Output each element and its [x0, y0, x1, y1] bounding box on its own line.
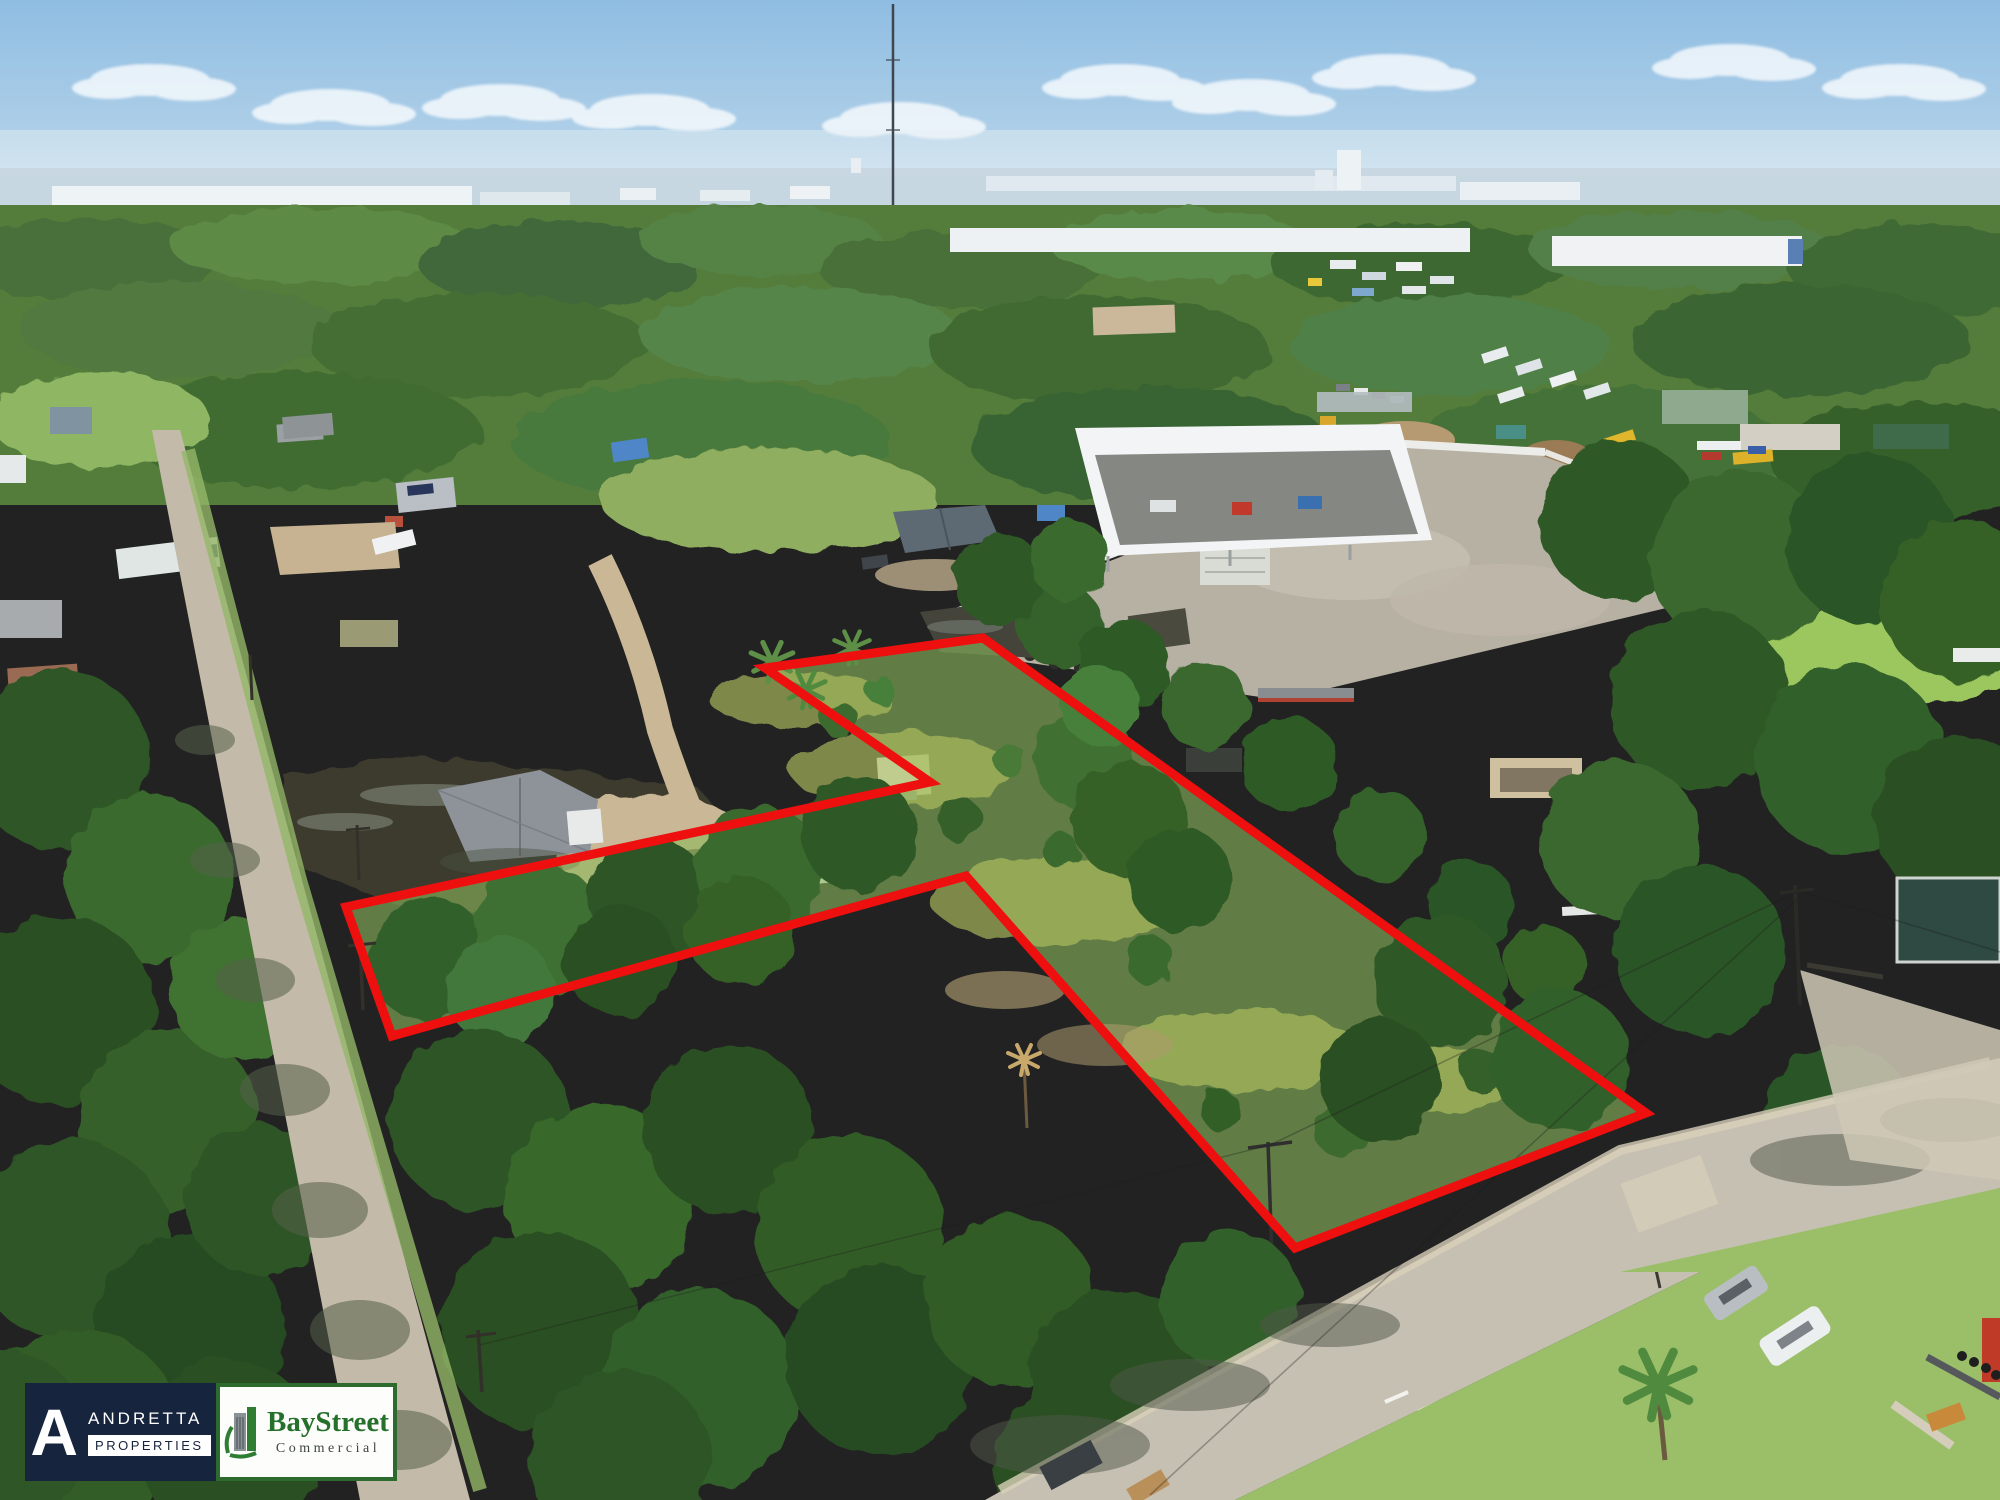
green-building: [1662, 390, 1748, 424]
olive-house: [340, 620, 398, 647]
red-car: [1701, 452, 1721, 460]
andretta-monogram: A: [30, 1399, 78, 1465]
gray-house-solar: [396, 477, 457, 513]
distant-highrise: [1337, 150, 1361, 190]
andretta-properties-logo: A ANDRETTA PROPERTIES: [25, 1383, 216, 1481]
andretta-name: ANDRETTA: [88, 1409, 202, 1429]
teal-machine: [1496, 425, 1526, 439]
shed: [50, 407, 92, 434]
tan-building: [1093, 305, 1176, 336]
lawn-patch: [600, 448, 940, 552]
andretta-division: PROPERTIES: [88, 1435, 211, 1456]
dark-truck: [1186, 748, 1242, 772]
blue-tarp-2: [1037, 505, 1065, 521]
baystreet-building-icon: [224, 1405, 260, 1459]
aerial-scene: [0, 0, 2000, 1500]
fenced-enclosure: [1897, 878, 2000, 962]
baystreet-name: BayStreet: [267, 1408, 389, 1437]
yellow-unit: [1308, 278, 1322, 286]
dead-palm: [1008, 1045, 1040, 1128]
excavator: [1320, 416, 1336, 425]
baystreet-commercial-logo: BayStreet Commercial: [216, 1383, 397, 1481]
dark-green-warehouse: [1873, 424, 1949, 449]
crate-stacks: [1200, 545, 1270, 585]
blue-truck: [1748, 446, 1766, 454]
red-forklift: [1232, 502, 1252, 515]
blue-equipment: [1298, 496, 1322, 509]
baystreet-division: Commercial: [276, 1441, 380, 1457]
big-warehouse: [1552, 236, 1802, 266]
aerial-listing-photo: A ANDRETTA PROPERTIES BayStreet Commerci…: [0, 0, 2000, 1500]
white-fence-bit: [1953, 648, 2000, 662]
